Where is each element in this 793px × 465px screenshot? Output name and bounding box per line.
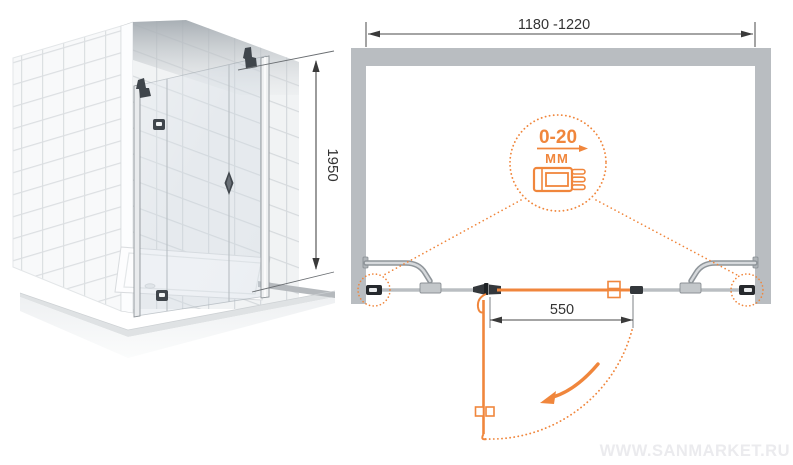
adjustment-arrow-icon [579,145,588,152]
door-closed-position [497,282,643,298]
drawing-canvas: 1950 1180 -1220 [0,0,793,465]
arrow-left-icon [490,317,502,324]
brace-right [691,263,755,281]
swing-direction-arrow-icon [553,364,598,397]
swing-arc [485,330,632,439]
adjustment-unit-label: ММ [545,151,569,166]
left-tiled-wall [13,26,121,311]
arrow-right-icon [741,31,753,38]
support-braces [363,257,758,293]
arrow-down-icon [312,258,319,270]
width-dimension: 1180 -1220 [366,17,755,47]
callout-leader-right [596,200,739,276]
adjustable-wall-profile-icon [534,168,585,191]
door-open-position [476,294,495,439]
adjustment-callout: 0-20 ММ [358,115,763,306]
brace-right-foot [680,283,701,293]
door-handle-icon [608,282,620,289]
technical-drawing: 1950 1180 -1220 [0,0,793,465]
site-watermark: WWW.SANMARKET.RU [600,442,790,461]
brace-left [366,263,430,281]
wall-top [351,48,771,66]
arrow-left-icon [368,31,380,38]
door-hinge [473,283,501,295]
left-wall-profile [134,85,140,318]
brace-left-foot [420,283,441,293]
shower-door-plan-view: 1180 -1220 [351,17,771,439]
door-swing [485,330,632,439]
door-width-dimension: 550 [490,295,633,328]
width-dimension-label: 1180 -1220 [518,17,590,33]
door-magnet-profile [630,286,643,294]
adjustment-range-label: 0-20 [539,127,577,148]
shower-enclosure-3d-view: 1950 [13,20,341,358]
arrow-right-icon [621,317,633,324]
door-handle-open-icon [476,407,484,416]
door-width-label: 550 [550,302,574,318]
glass-front [134,56,269,317]
arrow-up-icon [312,60,319,72]
height-dimension-label: 1950 [324,148,341,181]
